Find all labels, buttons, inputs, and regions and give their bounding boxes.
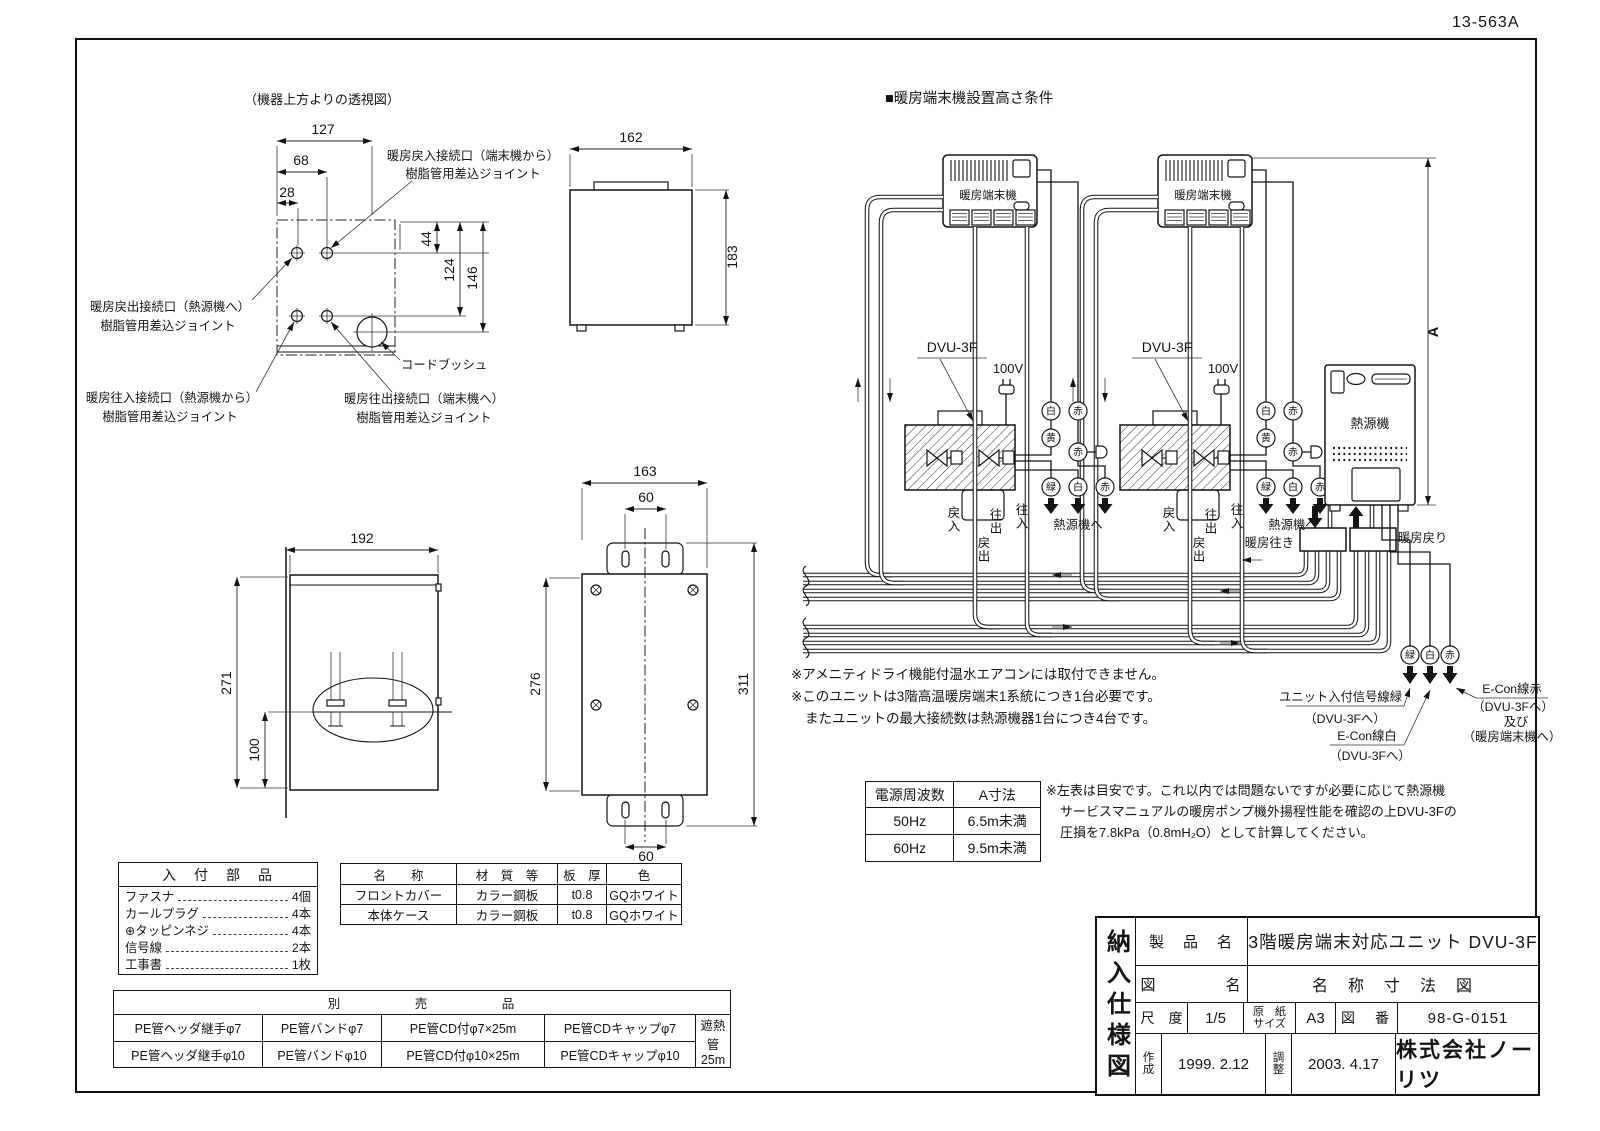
callout-supply-in-sub: 樹脂管用差込ジョイント	[102, 409, 237, 424]
parts-table-title: 入 付 部 品	[119, 863, 317, 887]
dim-a: A	[1426, 326, 1442, 337]
back-view-drawing: 163 60 276 311 60	[530, 460, 780, 875]
front-view-drawing: 192 271 100	[200, 470, 500, 860]
pipe-label-supply-out: 往出	[988, 508, 1001, 535]
callout-supply-in: 暖房往入接続口（熱源機から）	[86, 390, 258, 405]
dvu-label-2: DVU-3F	[1142, 339, 1193, 355]
product-name-value: 3階暖房端末対応ユニット DVU-3F	[1248, 918, 1538, 965]
signal-white-label: E-Con線白	[1337, 728, 1396, 743]
signal-red-dest1: （DVU-3Fへ）	[1472, 700, 1553, 714]
to-heat-source-label: 熱源機へ	[1268, 517, 1317, 532]
material-cell: 本体ケース	[341, 905, 457, 925]
parts-row: ファスナ4個	[119, 887, 317, 904]
wire-white-icon: 白	[1046, 405, 1056, 418]
created-label: 作成	[1136, 1034, 1162, 1094]
dim-100: 100	[246, 738, 262, 762]
part-qty: 1枚	[292, 955, 311, 973]
frequency-table: 電源周波数 A寸法 50Hz 6.5m未満 60Hz 9.5m未満	[865, 781, 1041, 862]
created-date: 1999. 2.12	[1162, 1034, 1266, 1094]
top-view-callouts: 暖房戻入接続口（端末機から） 樹脂管用差込ジョイント 暖房戻出接続口（熱源機へ）…	[86, 148, 559, 425]
title-block: 納入仕様図 製 品 名 3階暖房端末対応ユニット DVU-3F 図 名 名 称 …	[1095, 916, 1540, 1096]
power-label: 100V	[1208, 361, 1239, 376]
parts-row: ⊕タッピンネジ4本	[119, 921, 317, 938]
signal-red-label: E-Con線赤	[1482, 681, 1541, 696]
optional-cell: PE管CDキャップφ7	[545, 1015, 696, 1042]
material-cell: GQホワイト	[607, 905, 682, 925]
material-header-material: 材 質 等	[457, 864, 558, 885]
dim-124: 124	[441, 258, 457, 282]
part-name: 信号線	[125, 938, 162, 956]
parts-row: カールプラグ4本	[119, 904, 317, 921]
optional-cell: PE管CD付φ10×25m	[382, 1041, 545, 1068]
pipe-label-return-in: 戻入	[946, 506, 959, 533]
dim-162: 162	[619, 129, 643, 145]
side-view-body	[570, 182, 692, 331]
material-cell: GQホワイト	[607, 885, 682, 905]
freq-60hz: 60Hz	[866, 835, 954, 862]
material-cell: カラー鋼板	[457, 905, 558, 925]
product-name-label: 製 品 名	[1136, 918, 1248, 965]
optional-table-title: 別 売 品	[114, 991, 731, 1015]
wire-white-icon: 白	[1425, 649, 1435, 662]
return-header-label: 暖房戻り	[1398, 530, 1447, 545]
wire-green-icon: 緑	[1261, 481, 1271, 494]
optional-cell: PE管ヘッダ継手φ7	[114, 1015, 263, 1042]
included-parts-table: 入 付 部 品 ファスナ4個 カールプラグ4本 ⊕タッピンネジ4本 信号線2本 …	[118, 862, 318, 975]
freq-60hz-value: 9.5m未満	[954, 835, 1041, 862]
material-header-color: 色	[607, 864, 682, 885]
material-table: 名 称 材 質 等 板 厚 色 フロントカバー カラー鋼板 t0.8 GQホワイ…	[340, 863, 682, 925]
optional-cell-span: 遮熱管25m	[696, 1015, 731, 1068]
material-cell: フロントカバー	[341, 885, 457, 905]
schematic-title: ■暖房端末機設置高さ条件	[885, 90, 1053, 107]
drawing-sheet: 13-563A （機器上方よりの透視図） 127 68 28 4	[0, 0, 1600, 1131]
top-view-title: （機器上方よりの透視図）	[244, 92, 400, 107]
wire-red-icon: 赤	[1445, 650, 1455, 662]
wire-white-icon: 白	[1288, 481, 1298, 494]
material-header-name: 名 称	[341, 864, 457, 885]
pipe-label-supply-in: 往入	[1014, 503, 1027, 530]
power-supply-2: 100V	[1208, 361, 1239, 425]
note-line: ※左表は目安です。これ以内では問題ないですが必要に応じて熱源機	[1046, 780, 1457, 801]
dim-44: 44	[418, 231, 434, 247]
dim-28: 28	[279, 184, 295, 200]
pipe-label-return-in: 戻入	[1161, 506, 1174, 533]
part-name: ファスナ	[125, 887, 174, 905]
optional-cell: PE管CDキャップφ10	[545, 1041, 696, 1068]
pipe-label-return-out: 戻出	[1191, 536, 1204, 563]
to-heat-source-label: 熱源機へ	[1053, 517, 1102, 532]
note-line: ※このユニットは3階高温暖房端末1系統につき1台必要です。	[791, 686, 1165, 708]
part-name: カールプラグ	[125, 904, 199, 922]
wire-white-icon: 白	[1073, 481, 1083, 494]
revised-date: 2003. 4.17	[1292, 1034, 1396, 1094]
figure-number-label: 図 番	[1336, 1003, 1398, 1033]
signal-red-dest2: （暖房端末機へ）	[1463, 729, 1561, 744]
signal-red-and: 及び	[1504, 715, 1529, 729]
parts-row: 信号線2本	[119, 938, 317, 955]
frequency-note: ※左表は目安です。これ以内では問題ないですが必要に応じて熱源機 サービスマニュア…	[1046, 780, 1457, 843]
optional-parts-table: 別 売 品 PE管ヘッダ継手φ7 PE管バンドφ7 PE管CD付φ7×25m P…	[113, 990, 731, 1068]
paper-size-label: 原 紙サイズ	[1244, 1003, 1296, 1033]
callout-return-out-sub: 樹脂管用差込ジョイント	[100, 318, 235, 333]
wire-green-icon: 緑	[1405, 649, 1415, 662]
freq-header: 電源周波数	[866, 782, 954, 808]
supply-header-label: 暖房往き	[1245, 535, 1294, 550]
title-block-doc-type: 納入仕様図	[1097, 918, 1136, 1094]
part-qty: 4本	[292, 921, 311, 939]
dim-68: 68	[293, 152, 309, 168]
wire-green-icon: 緑	[1046, 481, 1056, 494]
callout-supply-out-sub: 樹脂管用差込ジョイント	[356, 410, 491, 425]
scale-value: 1/5	[1188, 1003, 1244, 1033]
signal-white-dest: （DVU-3Fへ）	[1329, 749, 1410, 763]
freq-50hz-value: 6.5m未満	[954, 808, 1041, 835]
front-view-body	[286, 547, 452, 818]
wire-yellow-icon: 黄	[1046, 432, 1056, 445]
doc-type-vertical-label: 納入仕様図	[1099, 929, 1134, 1084]
wire-red-icon: 赤	[1315, 482, 1325, 494]
side-view-drawing: 162 183	[540, 120, 770, 350]
paper-label-line2: サイズ	[1253, 1018, 1286, 1030]
installation-notes: ※アメニティドライ機能付温水エアコンには取付できません。 ※このユニットは3階高…	[791, 664, 1165, 730]
heating-pipes	[803, 197, 1389, 651]
wire-red-icon: 赤	[1288, 447, 1298, 459]
dim-276: 276	[527, 672, 543, 696]
callout-return-out: 暖房戻出接続口（熱源機へ）	[90, 299, 250, 314]
optional-cell: PE管バンドφ10	[263, 1041, 382, 1068]
drawing-name-label: 図 名	[1136, 966, 1248, 1002]
heat-source-unit: 熱源機	[1325, 365, 1415, 511]
note-line: ※アメニティドライ機能付温水エアコンには取付できません。	[791, 664, 1165, 686]
pipe-label-supply-out: 往出	[1203, 508, 1216, 535]
wire-white-icon: 白	[1261, 405, 1271, 418]
part-name: ⊕タッピンネジ	[125, 921, 209, 939]
paper-size-value: A3	[1296, 1003, 1336, 1033]
econ-plug-icon	[1311, 446, 1322, 458]
part-name: 工事書	[125, 955, 162, 973]
company-name: 株式会社ノーリツ	[1396, 1034, 1538, 1094]
power-supply-1: 100V	[993, 361, 1024, 425]
dim-271: 271	[218, 671, 234, 695]
parts-row: 工事書1枚	[119, 955, 317, 972]
signal-green-dest: （DVU-3Fへ）	[1304, 712, 1385, 726]
material-header-thickness: 板 厚	[558, 864, 607, 885]
heat-source-label: 熱源機	[1350, 416, 1389, 431]
note-line: またユニットの最大接続数は熱源機器1台につき4台です。	[791, 708, 1165, 730]
optional-cell: PE管バンドφ7	[263, 1015, 382, 1042]
optional-cell: PE管CD付φ7×25m	[382, 1015, 545, 1042]
wire-red-icon: 赤	[1288, 406, 1298, 418]
part-qty: 4本	[292, 904, 311, 922]
freq-50hz: 50Hz	[866, 808, 954, 835]
document-code: 13-563A	[1452, 14, 1520, 32]
part-qty: 4個	[292, 887, 311, 905]
callout-cord-bush: コードブッシュ	[401, 357, 487, 372]
signal-green-label: ユニット入付信号線緑	[1279, 689, 1402, 704]
terminal-unit-1: 暖房端末機	[943, 155, 1037, 227]
econ-plug-icon	[1096, 446, 1107, 458]
wire-yellow-icon: 黄	[1261, 432, 1271, 445]
revised-label: 調整	[1266, 1034, 1292, 1094]
callout-supply-out: 暖房往出接続口（端末機へ）	[344, 391, 504, 406]
dim-163: 163	[633, 463, 657, 479]
back-view-body	[582, 528, 707, 842]
wire-red-icon: 赤	[1100, 482, 1110, 494]
dim-127: 127	[311, 121, 335, 137]
note-line: サービスマニュアルの暖房ポンプ機外揚程性能を確認の上DVU-3Fの	[1046, 801, 1457, 822]
material-cell: t0.8	[558, 885, 607, 905]
dim-a-header: A寸法	[954, 782, 1041, 808]
wire-red-icon: 赤	[1073, 406, 1083, 418]
terminal-unit-2: 暖房端末機	[1158, 155, 1252, 227]
top-view-drawing: （機器上方よりの透視図） 127 68 28 44 124 146	[80, 90, 580, 440]
dim-60-bottom: 60	[638, 848, 654, 864]
pipe-label-return-out: 戻出	[976, 536, 989, 563]
dim-146: 146	[464, 266, 480, 290]
paper-label-line1: 原 紙	[1253, 1006, 1286, 1018]
callout-return-in: 暖房戻入接続口（端末機から）	[387, 148, 559, 163]
terminal-unit-label: 暖房端末機	[959, 188, 1017, 202]
top-view-panel	[277, 220, 395, 355]
power-label: 100V	[993, 361, 1024, 376]
material-cell: t0.8	[558, 905, 607, 925]
callout-return-in-sub: 樹脂管用差込ジョイント	[405, 166, 540, 181]
dim-60-top: 60	[638, 489, 654, 505]
part-qty: 2本	[292, 938, 311, 956]
pipe-label-supply-in: 往入	[1229, 503, 1242, 530]
drawing-name-value: 名 称 寸 法 図	[1248, 966, 1538, 1002]
dim-183: 183	[724, 245, 740, 269]
dim-311: 311	[735, 673, 751, 696]
dim-192: 192	[350, 530, 374, 546]
figure-number-value: 98-G-0151	[1398, 1003, 1538, 1033]
wire-red-icon: 赤	[1073, 447, 1083, 459]
scale-label: 尺 度	[1136, 1003, 1188, 1033]
terminal-unit-label: 暖房端末機	[1174, 188, 1232, 202]
optional-cell: PE管ヘッダ継手φ10	[114, 1041, 263, 1068]
dvu-label-1: DVU-3F	[927, 339, 978, 355]
material-cell: カラー鋼板	[457, 885, 558, 905]
note-line: 圧損を7.8kPa（0.8mH₂O）として計算してください。	[1046, 822, 1457, 843]
